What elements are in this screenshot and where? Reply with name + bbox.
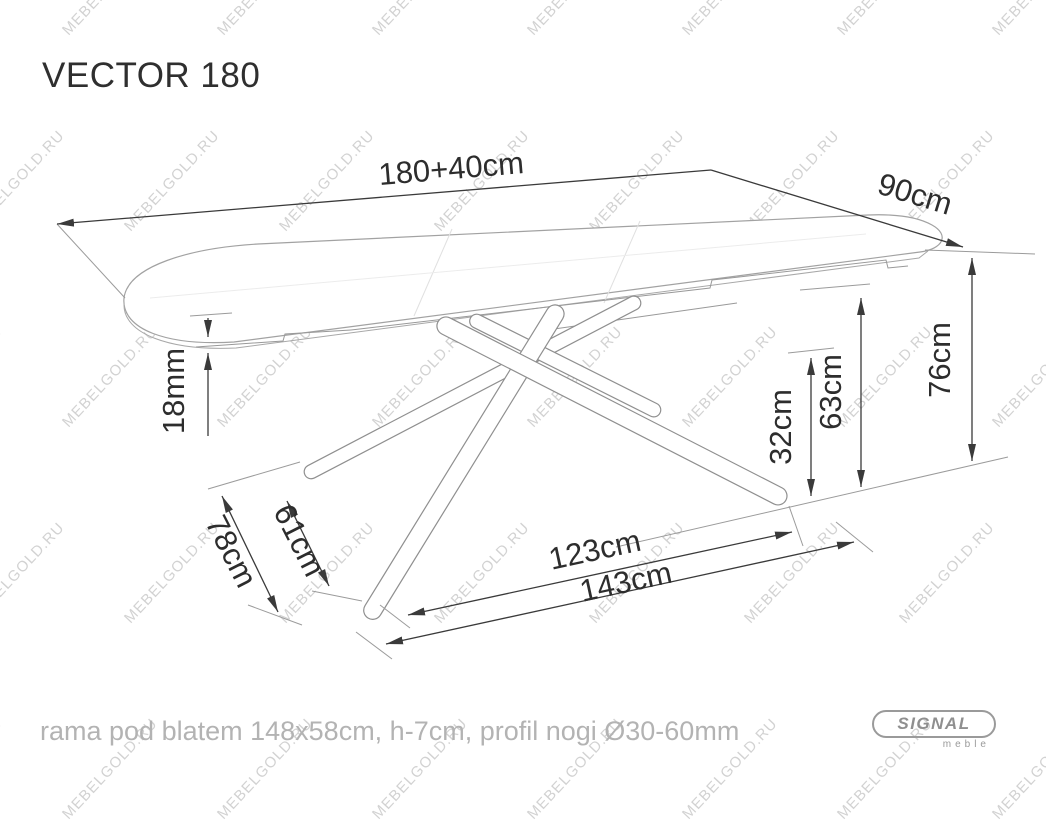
witness-base-inner-left [380,605,410,628]
frame-spec-note: rama pod blatem 148x58cm, h-7cm, profil … [40,716,739,747]
diagram-canvas: MEBELGOLD.RUMEBELGOLD.RUMEBELGOLD.RUMEBE… [0,0,1046,800]
tabletop [124,215,942,349]
witness-right-corner [925,250,1035,254]
witness-clearance-top [788,348,834,353]
witness-feet-outer-top [208,462,300,489]
dim-label-feet-outer: 78cm [199,510,265,593]
tabletop-outline [124,215,942,343]
dim-label-top-thickness: 18mm [156,348,191,434]
signal-logo-capsule: SIGNAL [872,710,996,738]
dim-label-clearance: 32cm [763,389,798,465]
dim-label-height: 76cm [922,322,957,398]
witness-base-inner-right [789,506,803,546]
dim-label-top-depth: 90cm [874,166,957,222]
signal-logo-subbrand: meble [872,739,996,750]
signal-logo-brand: SIGNAL [897,714,970,734]
dim-label-feet-inner: 61cm [267,499,333,582]
witness-feet-inner-bottom [312,591,362,601]
signal-logo: SIGNAL meble [872,710,996,750]
witness-base-outer-right [836,522,873,552]
witness-left-end [57,224,125,298]
spider-base [302,294,790,623]
dim-label-frame-height: 63cm [813,354,848,430]
witness-frame-top [800,284,870,290]
witness-base-outer-left [356,632,392,659]
ground-line-right [616,457,1008,547]
leg-front-left [360,302,567,623]
dim-label-top-length: 180+40cm [377,145,525,192]
table-technical-drawing: 180+40cm 90cm 76cm 63cm 32cm 18mm 61cm 7… [0,0,1046,800]
witness-feet-outer-bottom [248,605,302,625]
